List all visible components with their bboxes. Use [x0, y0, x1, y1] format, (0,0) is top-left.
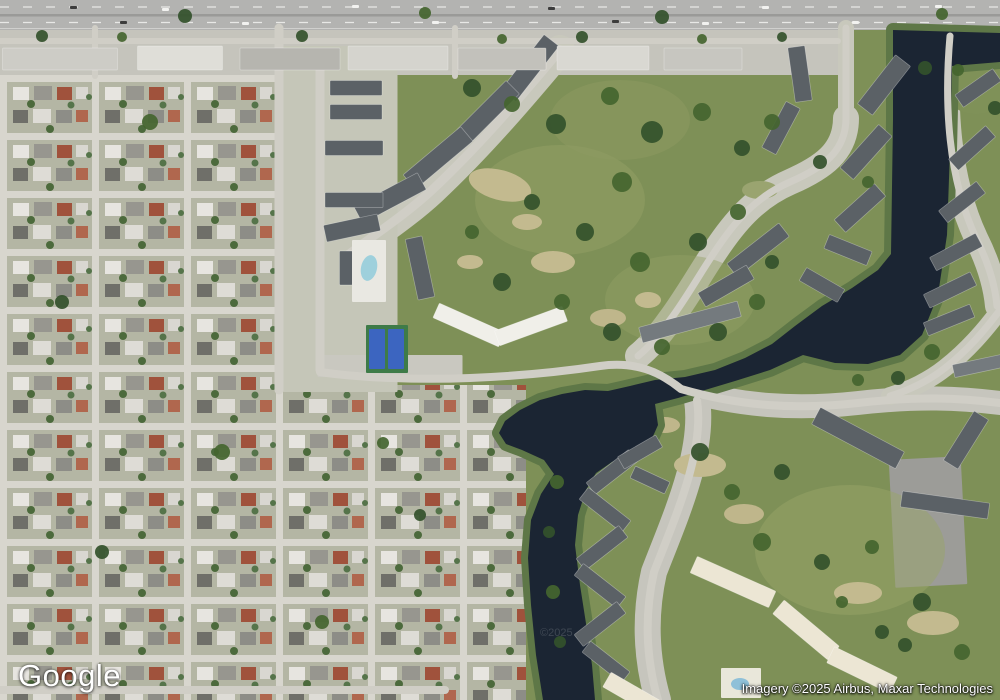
residential-grid-south	[276, 385, 526, 700]
imagery-attribution: Imagery ©2025 Airbus, Maxar Technologies	[742, 681, 993, 696]
imagery-watermark: ©2025	[540, 627, 573, 639]
residential-grid-west	[0, 75, 288, 700]
highway-median	[0, 14, 1000, 17]
google-logo[interactable]: Google	[18, 658, 121, 694]
map-viewport[interactable]: ©2025 Google Imagery ©2025 Airbus, Maxar…	[0, 0, 1000, 700]
satellite-imagery: ©2025	[0, 0, 1000, 700]
